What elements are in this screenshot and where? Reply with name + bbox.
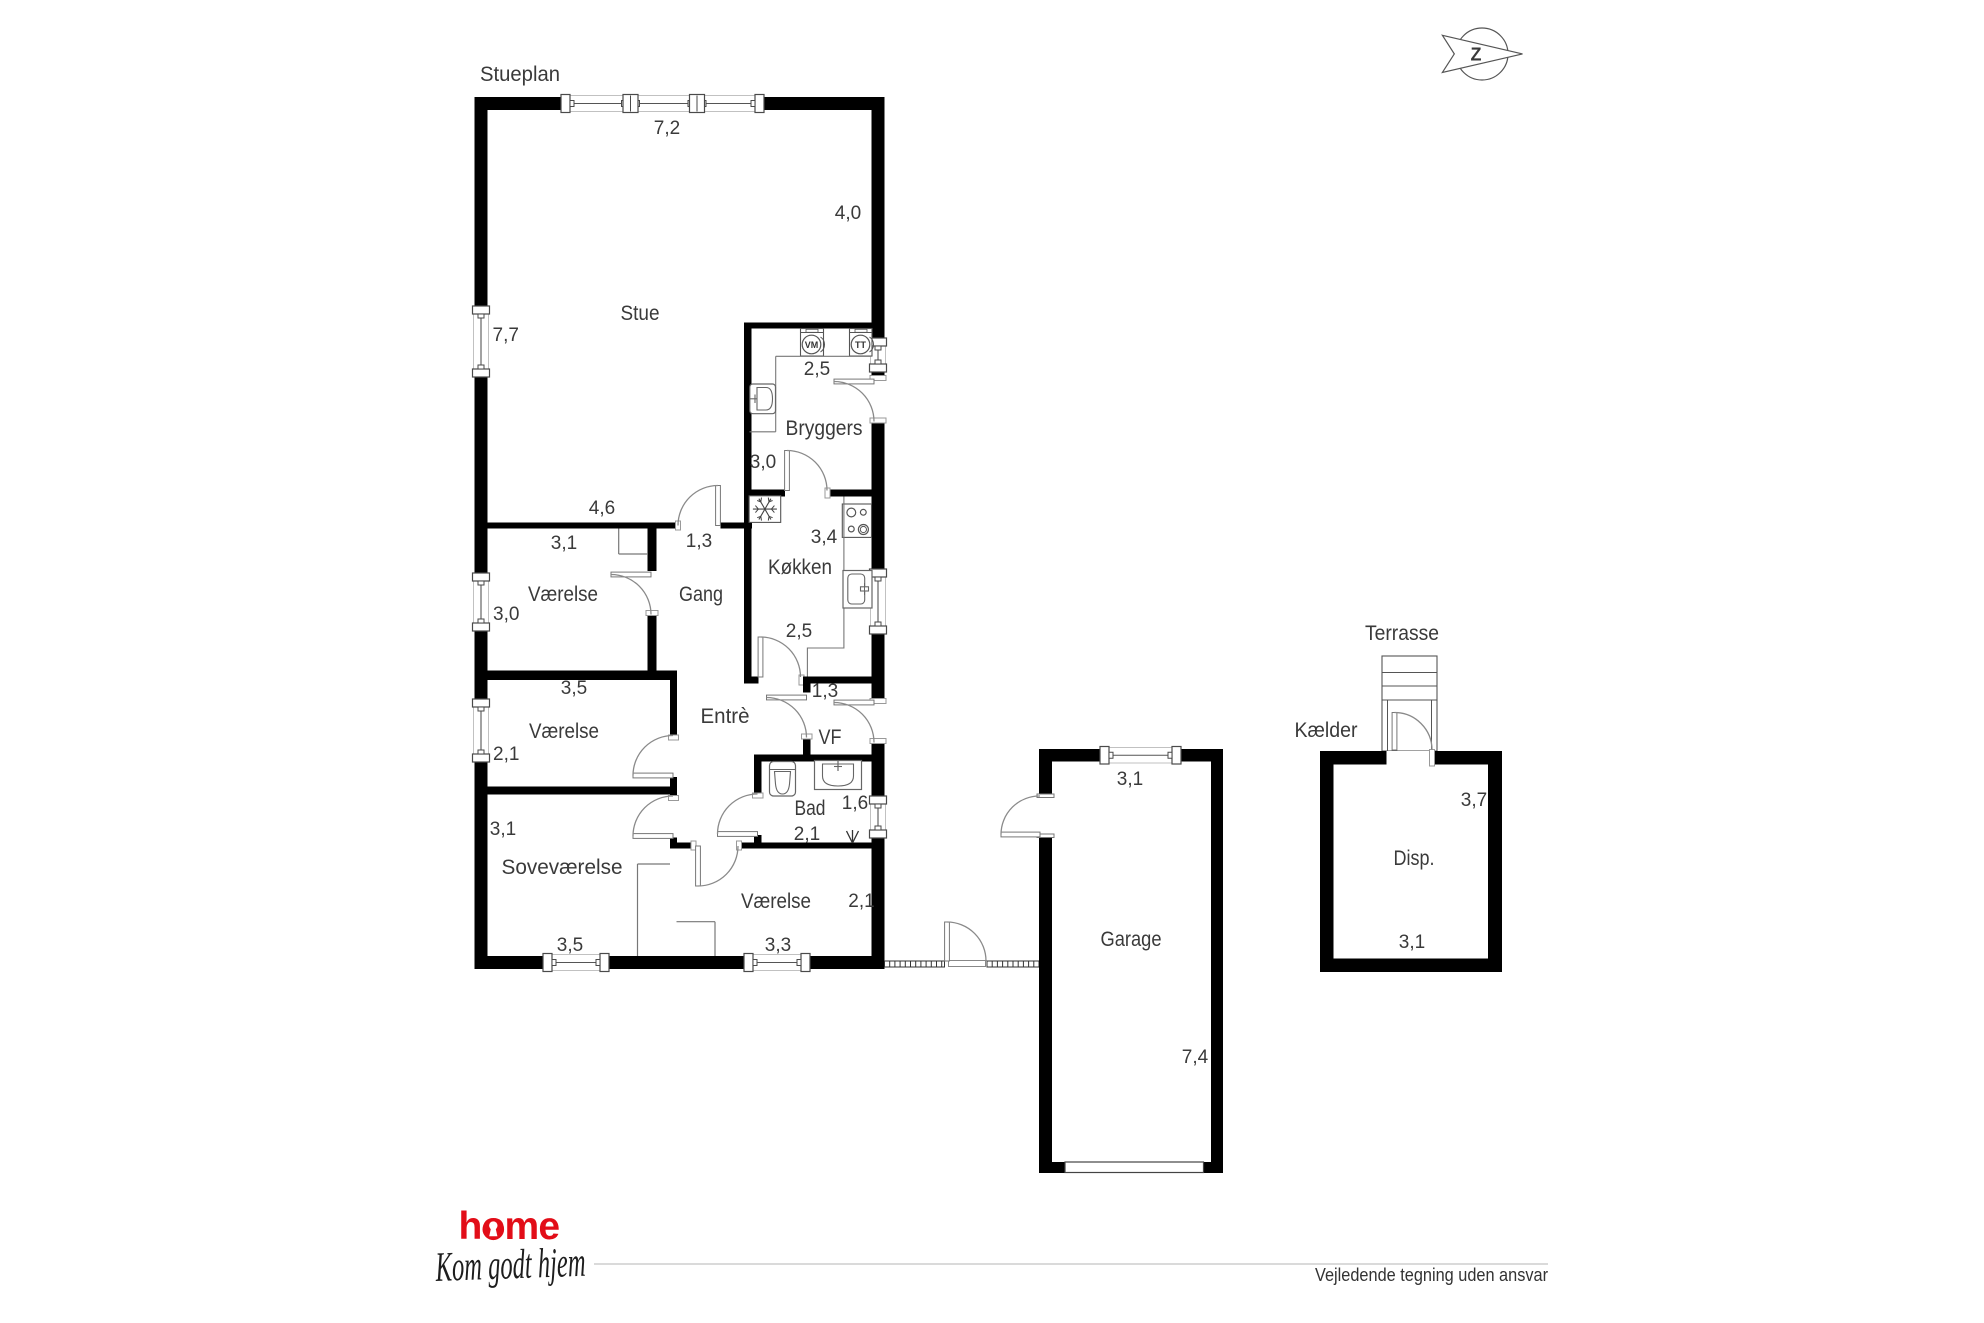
svg-text:1,6: 1,6 (842, 793, 868, 814)
svg-text:Bryggers: Bryggers (786, 417, 863, 440)
svg-text:VM: VM (805, 340, 819, 350)
svg-text:Terrasse: Terrasse (1365, 622, 1439, 645)
svg-text:3,1: 3,1 (551, 533, 577, 554)
svg-text:2,1: 2,1 (493, 744, 519, 765)
svg-text:3,1: 3,1 (1399, 932, 1425, 953)
svg-text:2,1: 2,1 (848, 891, 874, 912)
svg-text:Stue: Stue (621, 302, 660, 325)
svg-text:3,0: 3,0 (750, 452, 776, 473)
svg-text:Gang: Gang (679, 583, 723, 606)
svg-text:1,3: 1,3 (686, 531, 712, 552)
svg-text:Entrè: Entrè (701, 705, 750, 728)
svg-text:3,1: 3,1 (490, 819, 516, 840)
svg-text:7,4: 7,4 (1182, 1047, 1209, 1068)
svg-text:4,0: 4,0 (835, 203, 861, 224)
svg-text:Kælder: Kælder (1295, 719, 1358, 742)
svg-text:3,7: 3,7 (1461, 790, 1487, 811)
svg-text:Kom godt hjem: Kom godt hjem (434, 1240, 586, 1291)
svg-text:3,5: 3,5 (561, 678, 587, 699)
svg-text:7,2: 7,2 (654, 118, 680, 139)
svg-text:3,4: 3,4 (811, 527, 838, 548)
svg-text:Garage: Garage (1101, 928, 1162, 951)
svg-text:3,5: 3,5 (557, 935, 583, 956)
svg-text:Z: Z (1471, 45, 1482, 65)
svg-text:3,0: 3,0 (493, 604, 519, 625)
svg-text:2,5: 2,5 (804, 359, 830, 380)
svg-text:Disp.: Disp. (1394, 847, 1435, 870)
svg-text:1,3: 1,3 (812, 681, 838, 702)
svg-text:3,3: 3,3 (765, 935, 791, 956)
svg-text:Værelse: Værelse (529, 720, 599, 743)
svg-text:Værelse: Værelse (741, 890, 811, 913)
svg-text:TT: TT (855, 340, 866, 350)
svg-text:7,7: 7,7 (493, 325, 519, 346)
svg-text:Stueplan: Stueplan (480, 63, 560, 86)
svg-text:Soveværelse: Soveværelse (502, 856, 623, 879)
svg-text:VF: VF (819, 726, 842, 749)
svg-text:Køkken: Køkken (768, 556, 832, 579)
svg-text:3,1: 3,1 (1117, 769, 1143, 790)
svg-text:4,6: 4,6 (589, 498, 615, 519)
svg-text:2,5: 2,5 (786, 621, 812, 642)
svg-text:Værelse: Værelse (528, 583, 598, 606)
svg-text:Bad: Bad (795, 797, 826, 820)
svg-text:Vejledende tegning uden ansvar: Vejledende tegning uden ansvar (1315, 1264, 1548, 1285)
svg-text:2,1: 2,1 (794, 824, 820, 845)
